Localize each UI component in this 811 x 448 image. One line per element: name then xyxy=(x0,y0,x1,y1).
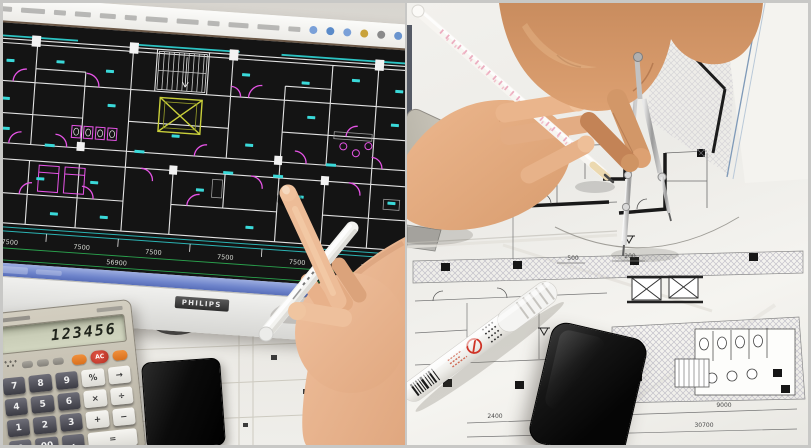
hands-and-tools: 0 0 1 4 xyxy=(407,3,808,445)
pointing-hand-with-pen xyxy=(3,3,405,445)
composite-photo: 7500 7500 7500 7500 7500 7000 56900 xyxy=(0,0,811,448)
right-photo-blueprint-scene: 500 200 2400 9000 30700 xyxy=(407,3,808,445)
marker-pen xyxy=(407,277,570,417)
hand-and-pen xyxy=(259,184,405,445)
thumb xyxy=(301,311,343,318)
pencil-eraser xyxy=(412,5,424,17)
left-photo-cad-monitor-scene: 7500 7500 7500 7500 7500 7000 56900 xyxy=(3,3,405,445)
pencil-shadow xyxy=(575,181,615,193)
compass-head xyxy=(637,59,640,99)
pen-cap xyxy=(259,327,273,341)
compass-shadow xyxy=(611,248,679,262)
